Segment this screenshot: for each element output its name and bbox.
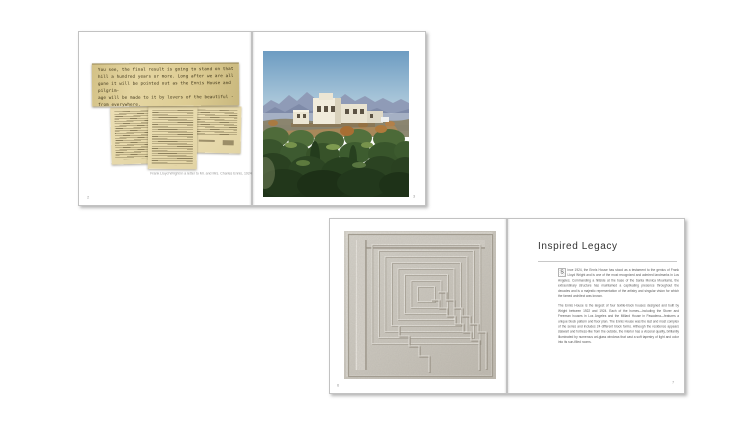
paragraph: Since 1924, the Ennis House has stood as… <box>558 268 679 299</box>
spread-gutter <box>504 219 510 393</box>
ennis-house-illustration <box>263 51 409 197</box>
textile-block-photo <box>344 231 496 379</box>
chapter-title: Inspired Legacy <box>538 241 618 252</box>
quote-line: gone it will be pointed out as the Ennis… <box>98 79 239 94</box>
page-textile-block: 6 <box>330 219 507 393</box>
page-number-right: 3 <box>413 194 425 202</box>
page-number-left: 2 <box>87 195 99 203</box>
drop-cap: S <box>558 269 566 277</box>
page-inspired-legacy: Inspired Legacy Since 1924, the Ennis Ho… <box>507 219 684 393</box>
page-number-right: 7 <box>672 380 684 388</box>
quote-line: from everywhere. <box>98 100 239 106</box>
page-house-photo: 3 <box>252 32 425 205</box>
typed-letter-page-2 <box>148 106 198 170</box>
spread-gutter <box>249 32 255 205</box>
letter-closing-line <box>199 140 215 142</box>
quote-line: age will be made to it by lovers of the … <box>98 93 239 101</box>
title-rule <box>538 261 677 262</box>
letter-signature-mark <box>223 140 234 145</box>
spread-inspired-legacy: 6 Inspired Legacy Since 1924, the Ennis … <box>329 218 685 394</box>
page-number-left: 6 <box>337 383 349 391</box>
typewritten-quote-text: You see, the final result is going to st… <box>92 62 239 106</box>
letter-text-lines <box>114 111 149 160</box>
letter-caption-text: Frank Lloyd Wright in a letter to Mr. an… <box>136 172 266 176</box>
spread-letter-and-house: You see, the final result is going to st… <box>78 31 426 206</box>
chapter-body: Since 1924, the Ennis House has stood as… <box>558 268 679 382</box>
ennis-house-hillside-photo <box>263 51 409 197</box>
paragraph: The Ennis House is the largest of four t… <box>558 304 679 346</box>
page-letter: You see, the final result is going to st… <box>79 32 252 205</box>
letter-caption: Frank Lloyd Wright in a letter to Mr. an… <box>136 172 266 180</box>
typed-letter-page-3 <box>193 106 242 154</box>
textile-block-illustration <box>344 231 496 379</box>
letter-text-lines <box>197 110 238 137</box>
book-spreads-preview: You see, the final result is going to st… <box>0 0 756 425</box>
paragraph-text: ince 1924, the Ennis House has stood as … <box>558 269 679 299</box>
letter-text-lines <box>152 110 194 165</box>
typewritten-quote-note: You see, the final result is going to st… <box>92 62 239 106</box>
